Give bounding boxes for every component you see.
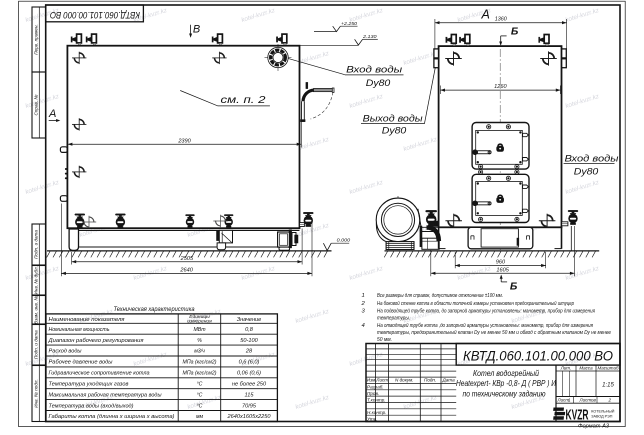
svg-text:%: % — [197, 338, 202, 344]
svg-text:по техническому заданию: по техническому заданию — [463, 389, 546, 398]
svg-text:Номинальная мощность: Номинальная мощность — [49, 327, 110, 333]
svg-text:Разраб.: Разраб. — [367, 385, 384, 390]
svg-text:2: 2 — [361, 301, 366, 307]
svg-text:2: 2 — [608, 397, 612, 402]
svg-text:Взам. инв. №: Взам. инв. № — [33, 296, 38, 324]
svg-text:2.130: 2.130 — [362, 34, 377, 40]
svg-text:Диапазон рабочего регулировани: Диапазон рабочего регулирования — [47, 338, 143, 344]
svg-text:70/95: 70/95 — [242, 403, 257, 409]
svg-text:КВТД.060.101.00.000 ВО: КВТД.060.101.00.000 ВО — [463, 348, 613, 363]
svg-text:Рабочее давление воды: Рабочее давление воды — [49, 360, 113, 366]
svg-text:1360: 1360 — [495, 16, 507, 22]
svg-text:Температура воды (вход/выход): Температура воды (вход/выход) — [49, 403, 134, 409]
svg-text:115: 115 — [245, 392, 255, 398]
svg-text:1: 1 — [362, 293, 365, 299]
svg-text:Наименование показателя: Наименование показателя — [49, 317, 125, 323]
svg-text:Листов: Листов — [579, 397, 597, 402]
svg-text:Техническая характеристика: Техническая характеристика — [114, 306, 196, 313]
svg-text:Б: Б — [511, 26, 519, 38]
svg-text:Heatexpert- КВр -0,8- Д ( РВР: Heatexpert- КВр -0,8- Д ( РВР ) И — [456, 379, 556, 388]
svg-text:температуры.: температуры. — [377, 316, 410, 322]
svg-text:°С: °С — [197, 382, 203, 388]
svg-text:0.000: 0.000 — [337, 238, 351, 244]
svg-text:А: А — [481, 7, 490, 21]
svg-text:2640: 2640 — [179, 268, 193, 274]
svg-text:КВТД.060.101.00.000 ВО: КВТД.060.101.00.000 ВО — [50, 10, 140, 20]
svg-text:МВт: МВт — [193, 327, 206, 333]
svg-text:Дата: Дата — [442, 378, 456, 383]
svg-text:°С: °С — [197, 392, 203, 398]
svg-text:В: В — [193, 24, 200, 36]
svg-text:МПа (кгс/см2): МПа (кгс/см2) — [183, 371, 217, 377]
svg-text:°С: °С — [197, 403, 203, 409]
svg-text:Dy80: Dy80 — [382, 126, 408, 136]
svg-text:Формат А3: Формат А3 — [578, 423, 609, 429]
svg-text:Перв. примен.: Перв. примен. — [33, 24, 38, 55]
svg-text:ЗАВОД РЭП: ЗАВОД РЭП — [591, 415, 612, 419]
svg-text:28: 28 — [245, 349, 253, 355]
svg-text:Котел водогрейный: Котел водогрейный — [473, 369, 540, 378]
svg-text:0,8: 0,8 — [245, 327, 254, 333]
svg-text:мм: мм — [196, 414, 204, 420]
svg-text:см. п. 2: см. п. 2 — [221, 95, 267, 106]
svg-text:Лит.: Лит. — [560, 366, 572, 371]
svg-text:+2.250: +2.250 — [341, 21, 357, 27]
svg-text:Подп.: Подп. — [424, 378, 436, 383]
svg-text:Максимальная рабочая температу: Максимальная рабочая температура воды — [49, 392, 162, 398]
svg-text:Значение: Значение — [237, 317, 262, 323]
svg-text:На подводящей трубе котла, до: На подводящей трубе котла, до запорной а… — [377, 307, 596, 314]
svg-text:1605: 1605 — [496, 267, 509, 273]
svg-text:Вход воды: Вход воды — [346, 65, 402, 75]
svg-text:м3/ч: м3/ч — [194, 349, 205, 355]
svg-text:Масса: Масса — [579, 366, 593, 371]
svg-text:N докум.: N докум. — [395, 378, 414, 383]
svg-text:МПа (кгс/см2): МПа (кгс/см2) — [183, 360, 217, 366]
svg-text:Dy80: Dy80 — [366, 78, 392, 88]
svg-text:50-100: 50-100 — [240, 338, 258, 344]
svg-text:Выход воды: Выход воды — [363, 113, 423, 123]
svg-text:Гидравлическое сопротивление к: Гидравлическое сопротивление котла — [49, 371, 150, 377]
svg-text:Н.контр.: Н.контр. — [367, 410, 386, 415]
svg-text:2640х1605х2250: 2640х1605х2250 — [227, 414, 272, 420]
svg-text:Подп. и дата: Подп. и дата — [33, 230, 38, 259]
svg-text:1:15: 1:15 — [602, 382, 614, 388]
svg-text:Расход воды: Расход воды — [49, 349, 82, 355]
svg-text:Инв. № дубл.: Инв. № дубл. — [33, 266, 38, 294]
svg-text:КОТЕЛЬНЫЙ: КОТЕЛЬНЫЙ — [591, 410, 614, 414]
svg-text:Изм.: Изм. — [367, 378, 377, 383]
svg-text:2390: 2390 — [177, 138, 191, 144]
svg-text:Б: Б — [510, 281, 518, 293]
svg-text:Справ. №: Справ. № — [33, 95, 38, 116]
svg-text:960: 960 — [496, 260, 506, 266]
svg-text:2505: 2505 — [180, 256, 194, 262]
svg-text:0,06 (0,6): 0,06 (0,6) — [237, 371, 261, 377]
svg-text:На боковой стенке котла в обла: На боковой стенке котла в области топочн… — [377, 300, 575, 307]
svg-text:Утв.: Утв. — [367, 416, 377, 421]
svg-text:А: А — [48, 108, 56, 120]
svg-text:Температура уходящих газов: Температура уходящих газов — [49, 382, 129, 388]
svg-text:измерения: измерения — [187, 320, 212, 325]
svg-text:Dy80: Dy80 — [574, 166, 600, 176]
svg-text:0,6 (6,0): 0,6 (6,0) — [239, 360, 260, 366]
svg-text:Лист: Лист — [375, 378, 388, 383]
svg-text:Габариты котла (длинна х ширин: Габариты котла (длинна х ширина х высота… — [49, 414, 175, 420]
svg-text:Подп. и дата: Подп. и дата — [33, 330, 38, 359]
svg-text:не более 250: не более 250 — [232, 382, 267, 388]
svg-text:На отводящей трубе котла ,до з: На отводящей трубе котла ,до запорной ар… — [377, 322, 594, 329]
svg-text:KVZR: KVZR — [566, 408, 589, 424]
svg-text:Вход воды: Вход воды — [565, 153, 619, 163]
svg-text:Масштаб: Масштаб — [597, 366, 618, 371]
svg-text:температуры, предохранительный: температуры, предохранительный клапан Dу… — [377, 329, 612, 336]
svg-text:Все размеры для справок, допус: Все размеры для справок, допустимое откл… — [377, 293, 503, 299]
svg-text:1260: 1260 — [494, 84, 507, 90]
svg-text:Инв. № подл.: Инв. № подл. — [33, 379, 38, 408]
svg-text:Т.контр.: Т.контр. — [367, 397, 386, 402]
svg-text:50 мм.: 50 мм. — [377, 337, 392, 343]
svg-text:Пров.: Пров. — [367, 391, 379, 396]
